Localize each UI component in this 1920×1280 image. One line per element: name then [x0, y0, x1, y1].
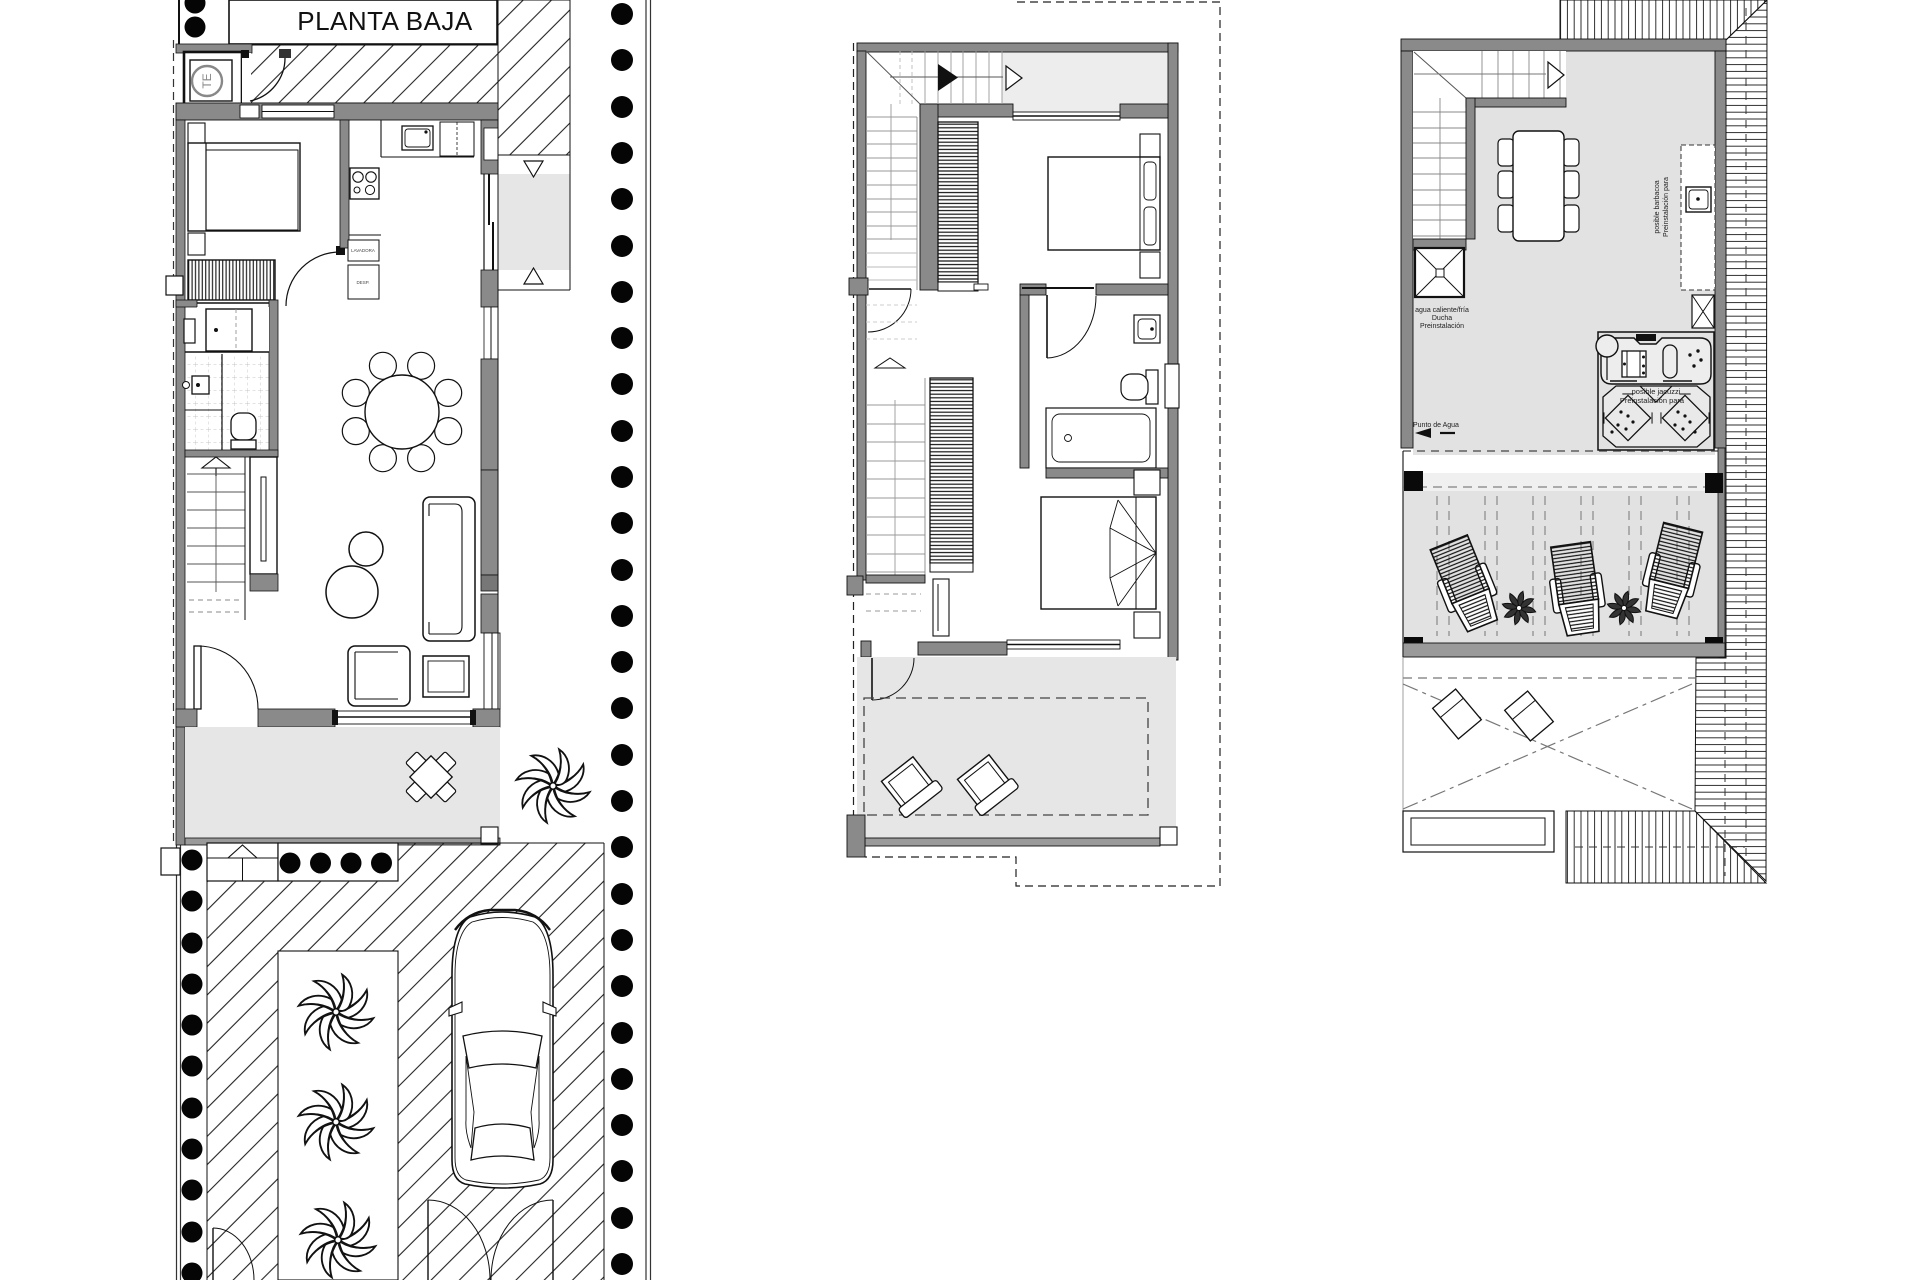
svg-text:LAVADORA: LAVADORA [351, 248, 375, 253]
svg-text:Punto de Agua: Punto de Agua [1413, 422, 1459, 429]
svg-text:posible jacuzzi: posible jacuzzi [1632, 387, 1681, 396]
svg-text:Preinstalación para: Preinstalación para [1620, 396, 1685, 405]
svg-text:Preinstalación: Preinstalación [1420, 323, 1464, 330]
svg-text:Preinstalación para: Preinstalación para [1663, 177, 1670, 237]
svg-text:PLANTA BAJA: PLANTA BAJA [297, 6, 473, 36]
svg-text:Ducha: Ducha [1432, 315, 1452, 322]
svg-text:DESP.: DESP. [357, 280, 370, 285]
svg-text:agua caliente/fría: agua caliente/fría [1415, 307, 1469, 314]
svg-text:posible barbacoa: posible barbacoa [1654, 180, 1661, 233]
svg-text:TE: TE [200, 73, 214, 88]
